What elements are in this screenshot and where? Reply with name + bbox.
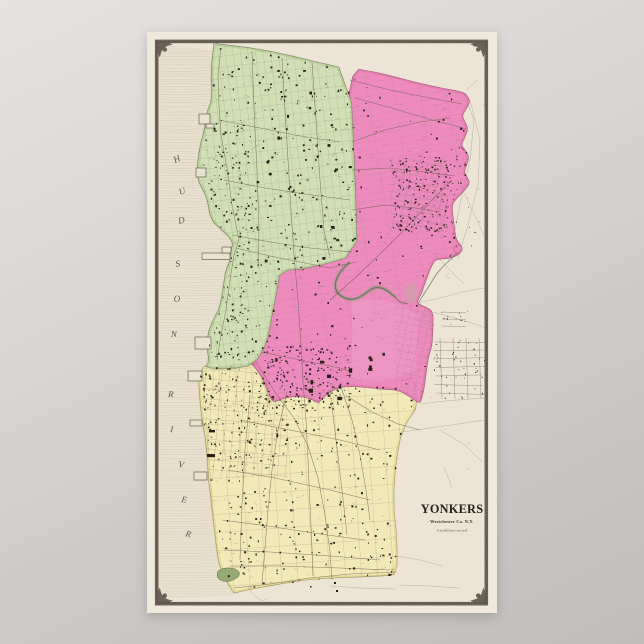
svg-text:Westchester Co. N.Y.: Westchester Co. N.Y. [430,519,474,524]
svg-text:R: R [167,389,174,399]
svg-text:YONKERS: YONKERS [421,502,484,516]
svg-text:Scale 600 feet to the inch: Scale 600 feet to the inch [437,529,468,533]
svg-text:38: 38 [473,43,477,48]
